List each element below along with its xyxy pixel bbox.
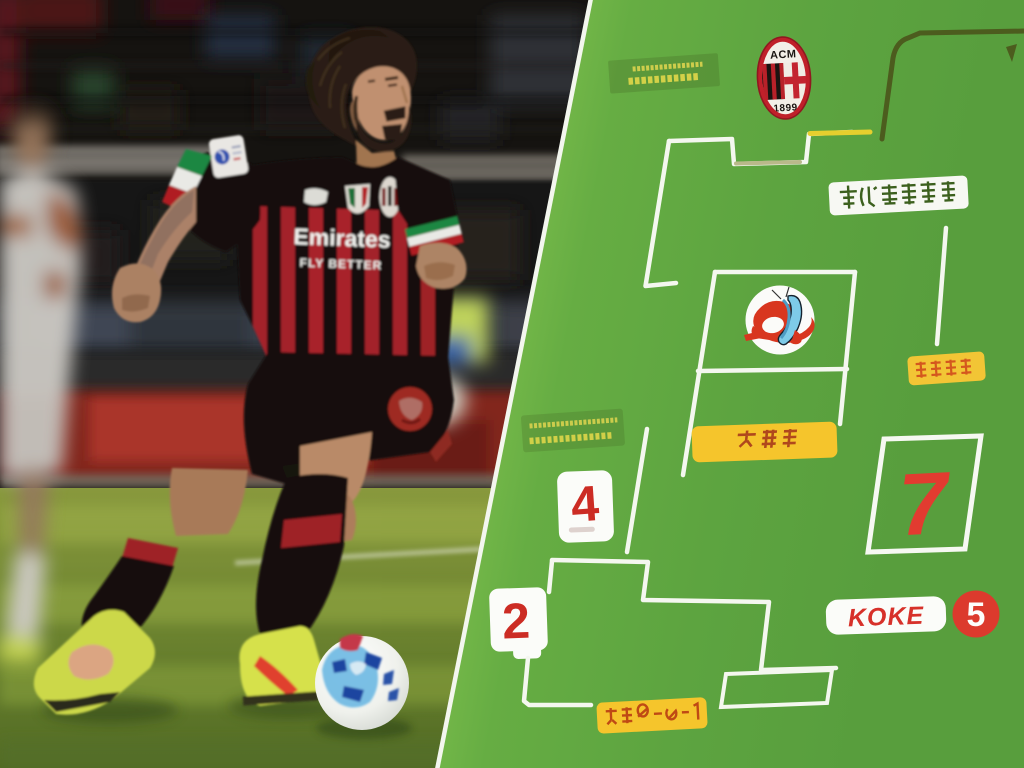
svg-text:5: 5 [967,596,986,634]
svg-text:Emirates: Emirates [293,223,391,252]
svg-text:2: 2 [501,593,531,650]
svg-text:KOKE: KOKE [847,602,924,633]
svg-text:FLY BETTER: FLY BETTER [299,256,382,273]
svg-text:ACM: ACM [770,48,797,61]
svg-text:4: 4 [569,475,601,533]
svg-text:7: 7 [896,453,954,555]
